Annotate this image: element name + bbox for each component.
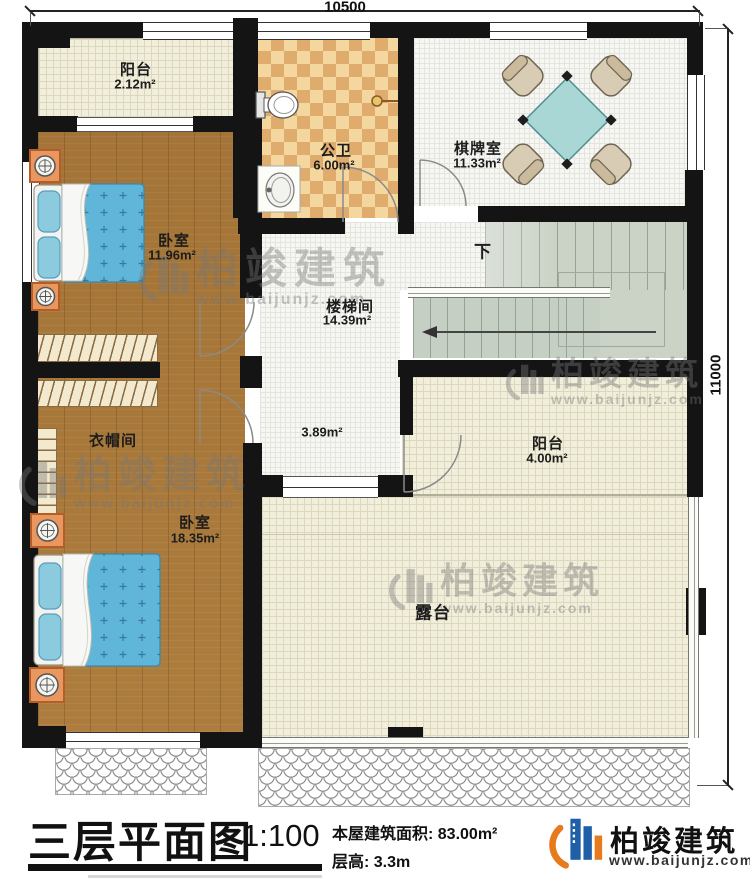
toilet-icon <box>256 92 298 118</box>
room-area-balcony-top: 2.12m² <box>114 77 155 92</box>
door-cloakroom <box>200 390 253 443</box>
room-label-bedroom2: 卧室 <box>179 512 211 533</box>
nightstand-icon <box>30 668 64 702</box>
chair-icon <box>499 52 547 100</box>
room-area-bathroom: 6.00m² <box>313 158 354 173</box>
nightstand-icon <box>32 283 59 310</box>
sink-icon <box>258 166 300 212</box>
bed-icon-bedroom1 <box>34 184 144 282</box>
door-bedroom1 <box>200 302 254 356</box>
stairs-down-label: 下 <box>474 238 492 263</box>
nightstand-icon <box>30 150 60 182</box>
room-label-cloakroom: 衣帽间 <box>89 430 137 451</box>
room-area-chess: 11.33m² <box>453 156 501 171</box>
room-label-terrace: 露台 <box>415 599 451 624</box>
room-area-stairwell: 14.39m² <box>323 313 371 328</box>
chair-icon <box>587 140 635 188</box>
chair-icon <box>499 140 547 188</box>
nightstand-icon <box>31 514 64 547</box>
bed-icon-bedroom2 <box>34 554 160 666</box>
chair-icon <box>587 52 635 100</box>
room-area-balcony-right: 4.00m² <box>526 451 567 466</box>
door-bathroom <box>343 167 398 222</box>
room-area-bedroom1: 11.96m² <box>148 248 196 263</box>
floor-plan-canvas: 柏竣建筑 www.baijunjz.com 柏竣建筑 www.baijunjz.… <box>0 0 750 887</box>
room-area-hallway: 3.89m² <box>301 425 342 440</box>
door-balcony-right <box>404 435 461 492</box>
table-icon <box>525 78 609 162</box>
shower-fixture-icon <box>372 96 398 106</box>
chess-table-set <box>499 52 635 188</box>
room-area-bedroom2: 18.35m² <box>171 531 219 546</box>
